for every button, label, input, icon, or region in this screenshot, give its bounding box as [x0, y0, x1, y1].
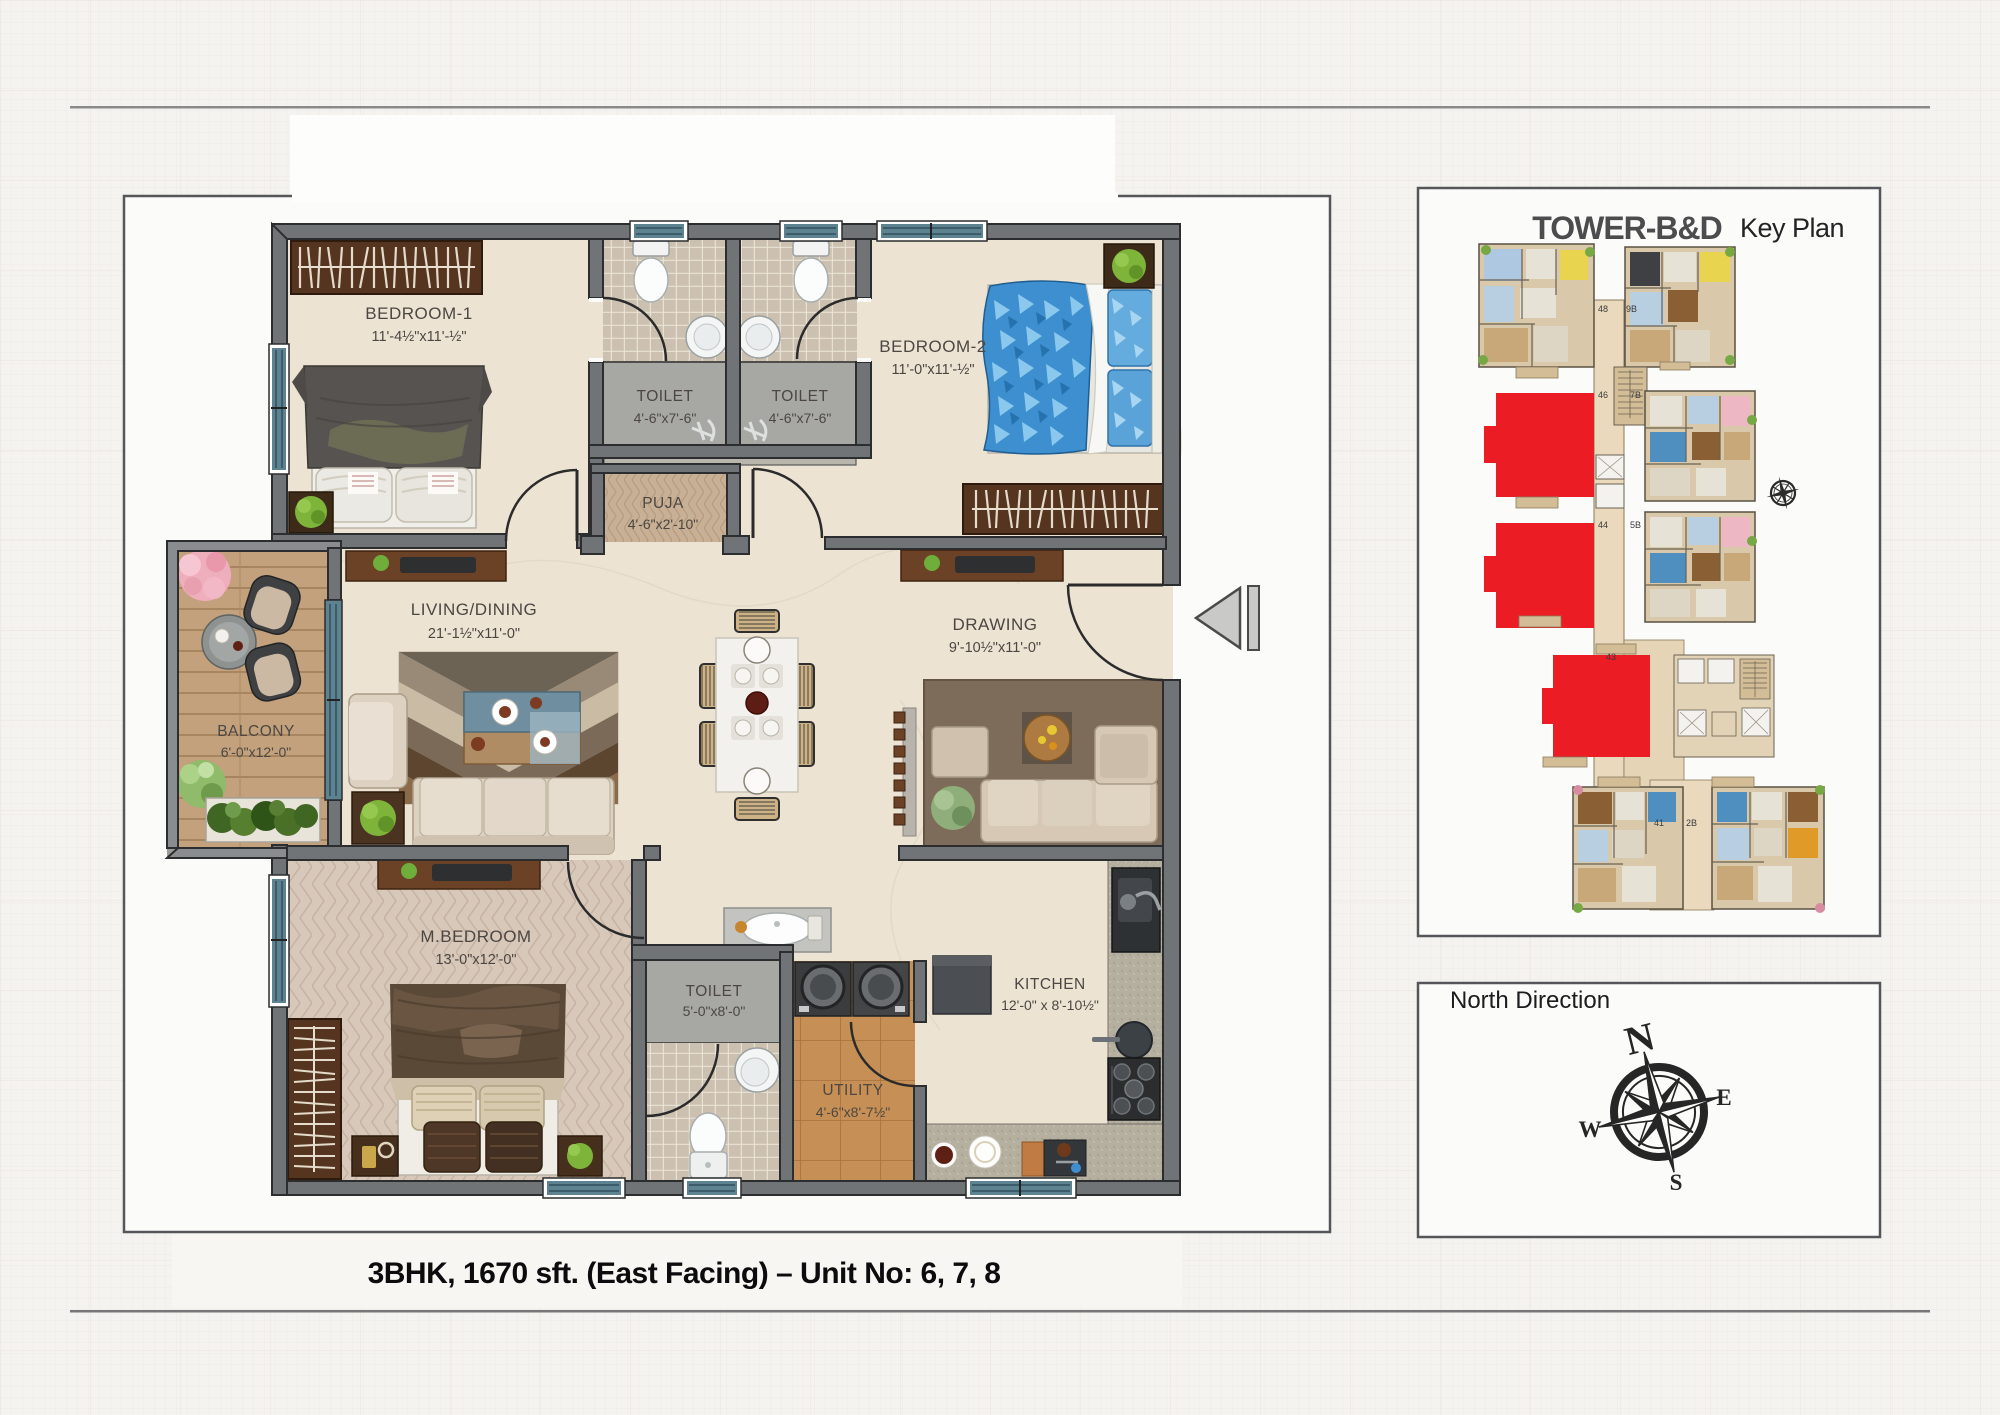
svg-text:4'-6"x7'-6": 4'-6"x7'-6"	[769, 410, 832, 426]
svg-text:DRAWING: DRAWING	[952, 615, 1037, 634]
svg-text:6'-0"x12'-0": 6'-0"x12'-0"	[221, 744, 292, 760]
svg-text:BEDROOM-1: BEDROOM-1	[365, 304, 472, 323]
svg-text:44: 44	[1598, 520, 1608, 530]
svg-text:4'-6"x8'-7½": 4'-6"x8'-7½"	[816, 1104, 890, 1120]
svg-text:E: E	[1716, 1085, 1731, 1110]
svg-text:13'-0"x12'-0": 13'-0"x12'-0"	[435, 952, 516, 968]
svg-text:BEDROOM-2: BEDROOM-2	[879, 337, 986, 356]
svg-text:12'-0" x 8'-10½": 12'-0" x 8'-10½"	[1001, 997, 1099, 1013]
svg-text:PUJA: PUJA	[642, 495, 684, 512]
svg-text:9'-10½"x11'-0": 9'-10½"x11'-0"	[949, 640, 1041, 656]
svg-text:LIVING/DINING: LIVING/DINING	[411, 600, 537, 619]
svg-text:21'-1½"x11'-0": 21'-1½"x11'-0"	[428, 626, 520, 642]
svg-text:11'-4½"x11'-½": 11'-4½"x11'-½"	[371, 329, 466, 345]
svg-text:4'-6"x2'-10": 4'-6"x2'-10"	[628, 516, 699, 532]
svg-text:46: 46	[1598, 390, 1608, 400]
svg-text:5'-0"x8'-0": 5'-0"x8'-0"	[683, 1003, 746, 1019]
svg-text:M.BEDROOM: M.BEDROOM	[420, 927, 531, 946]
svg-text:TOWER-B&D: TOWER-B&D	[1532, 210, 1722, 246]
svg-text:North Direction: North Direction	[1450, 987, 1610, 1014]
svg-text:43: 43	[1606, 652, 1616, 662]
svg-text:TOILET: TOILET	[686, 983, 743, 1000]
svg-text:41: 41	[1654, 818, 1664, 828]
svg-text:Key Plan: Key Plan	[1740, 213, 1844, 243]
svg-text:7B: 7B	[1630, 390, 1641, 400]
svg-text:S: S	[1670, 1170, 1683, 1195]
svg-text:KITCHEN: KITCHEN	[1014, 976, 1086, 993]
svg-text:3BHK, 1670 sft. (East Facing): 3BHK, 1670 sft. (East Facing) – Unit No:…	[368, 1257, 1001, 1290]
svg-text:48: 48	[1598, 304, 1608, 314]
svg-text:9B: 9B	[1626, 304, 1637, 314]
svg-text:W: W	[1579, 1117, 1602, 1142]
svg-text:TOILET: TOILET	[637, 388, 694, 405]
svg-text:UTILITY: UTILITY	[822, 1082, 883, 1099]
svg-text:11'-0"x11'-½": 11'-0"x11'-½"	[892, 362, 975, 378]
svg-text:BALCONY: BALCONY	[217, 723, 295, 740]
svg-text:2B: 2B	[1686, 818, 1697, 828]
svg-text:TOILET: TOILET	[772, 388, 829, 405]
svg-text:4'-6"x7'-6": 4'-6"x7'-6"	[634, 410, 697, 426]
svg-text:5B: 5B	[1630, 520, 1641, 530]
